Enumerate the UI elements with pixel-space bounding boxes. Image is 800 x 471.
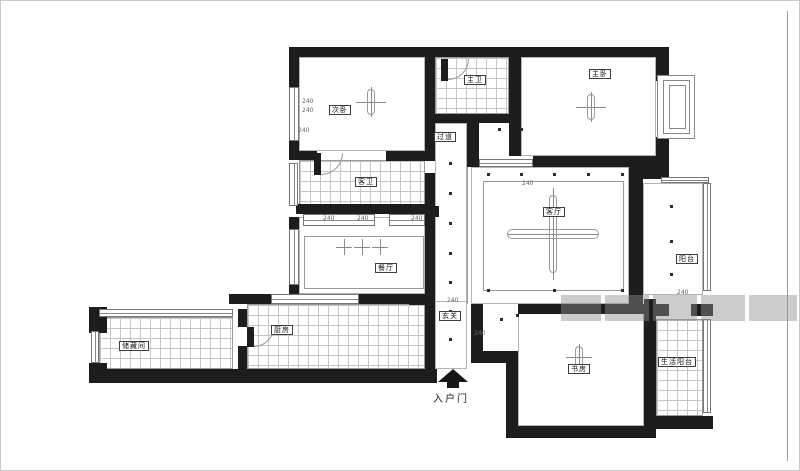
entry-arrow-stem xyxy=(447,382,459,388)
dimension-text: 240 xyxy=(357,216,368,222)
window-symbol xyxy=(661,177,709,183)
ceiling-dot xyxy=(670,205,673,208)
ceiling-dot xyxy=(621,173,624,176)
ceiling-light-symbol xyxy=(507,188,599,280)
ceiling-light-part xyxy=(367,89,375,114)
window-symbol xyxy=(271,294,359,304)
ceiling-light-symbol xyxy=(372,239,388,255)
dimension-text: 240 xyxy=(323,216,334,222)
window-symbol xyxy=(703,319,711,413)
watermark xyxy=(561,295,601,321)
dimension-text: 240 xyxy=(411,216,422,222)
wall-segment xyxy=(289,217,299,229)
ceiling-dot xyxy=(487,173,490,176)
ceiling-light-part xyxy=(336,247,352,248)
ceiling-dot xyxy=(449,192,452,195)
entry-door-label: 入户门 xyxy=(433,390,469,405)
ceiling-dot xyxy=(621,289,624,292)
watermark xyxy=(701,295,745,321)
ceiling-dot xyxy=(449,162,452,165)
ceiling-dot xyxy=(500,318,503,321)
window-symbol xyxy=(289,163,298,206)
wall-segment xyxy=(289,47,669,57)
wall-segment xyxy=(238,309,247,327)
wall-segment xyxy=(96,369,437,383)
wall-segment xyxy=(629,167,643,304)
room-label-shufang: 书房 xyxy=(568,364,590,374)
ceiling-light-symbol xyxy=(356,87,386,117)
wall-segment xyxy=(425,206,439,217)
dimension-text: 240 xyxy=(302,99,313,105)
door-leaf xyxy=(441,59,448,81)
watermark xyxy=(653,295,697,321)
ceiling-light-symbol xyxy=(576,92,606,122)
window-symbol xyxy=(479,159,533,167)
wall-segment xyxy=(425,173,435,369)
door-leaf xyxy=(247,327,254,347)
ceiling-dot xyxy=(670,273,673,276)
ceiling-light-part xyxy=(354,247,370,248)
room-label-xuanguan: 玄关 xyxy=(439,311,461,321)
room-shenghuoyangtai xyxy=(656,319,703,416)
wall-segment xyxy=(506,361,518,431)
room-label-chufang: 厨房 xyxy=(271,325,293,335)
ceiling-dot xyxy=(587,173,590,176)
watermark xyxy=(605,295,649,321)
ceiling-dot xyxy=(553,289,556,292)
ceiling-light-part xyxy=(587,94,595,119)
wall-segment xyxy=(533,156,669,167)
room-chufang xyxy=(247,304,425,369)
room-label-ciwo: 次卧 xyxy=(329,105,351,115)
wall-segment xyxy=(409,294,435,305)
floor-plan-screenshot: 240240240240240240240240240240次卧主卫主卧客卫过道… xyxy=(0,0,800,471)
ceiling-dot xyxy=(520,173,523,176)
room-label-kewei: 客卫 xyxy=(355,177,377,187)
window-symbol xyxy=(99,309,233,317)
ceiling-dot xyxy=(553,173,556,176)
frame-line xyxy=(467,167,468,304)
room-label-keting: 客厅 xyxy=(543,207,565,217)
ceiling-light-symbol xyxy=(336,239,352,255)
entry-arrow-icon xyxy=(438,369,468,382)
door-leaf xyxy=(314,153,321,175)
dimension-text: 240 xyxy=(474,331,485,337)
watermark xyxy=(749,295,797,321)
room-label-canting: 餐厅 xyxy=(375,263,397,273)
room-label-chucangjian: 储藏间 xyxy=(119,341,149,351)
ceiling-dot xyxy=(449,252,452,255)
wall-segment xyxy=(467,156,479,167)
bay-window xyxy=(669,85,686,129)
room-label-yangtai: 阳台 xyxy=(676,254,698,264)
dimension-text: 240 xyxy=(447,298,458,304)
wall-segment xyxy=(289,285,299,294)
frame-line xyxy=(787,11,788,461)
ceiling-dot xyxy=(449,338,452,341)
ceiling-light-part xyxy=(372,247,388,248)
floor-plan: 240240240240240240240240240240次卧主卫主卧客卫过道… xyxy=(1,1,799,470)
ceiling-dot xyxy=(520,128,523,131)
ceiling-dot xyxy=(670,240,673,243)
room-label-zhuwei: 主卫 xyxy=(464,75,486,85)
room-label-guodao: 过道 xyxy=(434,132,456,142)
window-symbol xyxy=(289,229,299,285)
window-symbol xyxy=(703,183,711,291)
window-symbol xyxy=(91,331,99,363)
room-yangtai xyxy=(643,183,703,295)
room-label-shenghuoyangtai: 生活阳台 xyxy=(658,357,696,367)
ceiling-dot xyxy=(516,314,519,317)
wall-segment xyxy=(656,137,669,167)
ceiling-dot xyxy=(449,222,452,225)
ceiling-dot xyxy=(449,281,452,284)
wall-segment xyxy=(296,204,431,214)
wall-segment xyxy=(238,346,247,369)
wall-segment xyxy=(644,416,713,429)
wall-segment xyxy=(229,294,271,304)
wall-segment xyxy=(506,426,656,438)
room-label-zhuwo: 主卧 xyxy=(589,69,611,79)
dimension-text: 240 xyxy=(302,108,313,114)
ceiling-light-symbol xyxy=(354,239,370,255)
wall-segment xyxy=(289,151,317,160)
wall-segment xyxy=(289,57,299,87)
ceiling-dot xyxy=(498,128,501,131)
wall-segment xyxy=(509,57,521,156)
dimension-text: 240 xyxy=(522,181,533,187)
dimension-text: 240 xyxy=(298,128,309,134)
ceiling-dot xyxy=(487,289,490,292)
